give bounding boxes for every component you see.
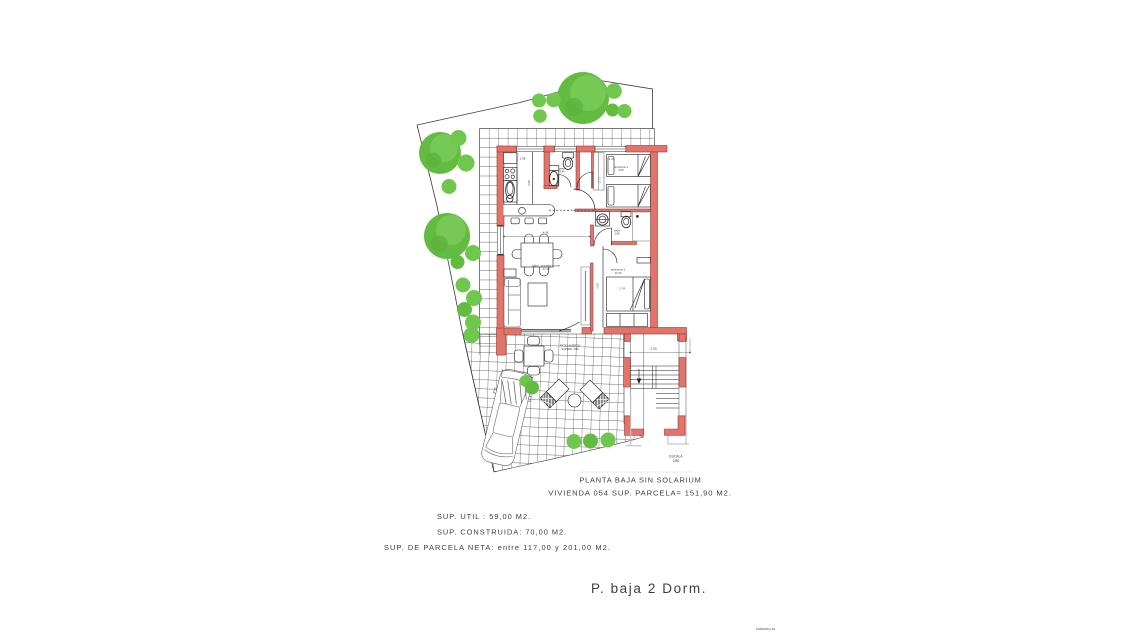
svg-text:27.10: 27.10 (543, 267, 550, 271)
svg-text:SUP. UTIL : 59,00 M2.: SUP. UTIL : 59,00 M2. (437, 512, 531, 521)
svg-text:1.88: 1.88 (520, 157, 526, 161)
svg-text:1.74: 1.74 (619, 287, 625, 291)
svg-text:2.20: 2.20 (650, 347, 656, 351)
svg-text:SUP. CONSTRUIDA: 70,00 M2.: SUP. CONSTRUIDA: 70,00 M2. (437, 527, 567, 536)
svg-text:SUPERF. 30M: SUPERF. 30M (561, 347, 579, 351)
svg-text:P. baja 2 Dorm.: P. baja 2 Dorm. (591, 581, 707, 596)
svg-text:FORMATO A3: FORMATO A3 (756, 627, 775, 631)
svg-text:VIVIENDA 054 SUP. PARCELA= 151: VIVIENDA 054 SUP. PARCELA= 151,90 M2. (548, 489, 732, 498)
svg-text:2.71: 2.71 (598, 177, 602, 183)
svg-text:3.90: 3.90 (596, 283, 600, 289)
svg-text:8.05: 8.05 (618, 168, 624, 172)
svg-text:10.30: 10.30 (615, 271, 622, 275)
svg-text:2.41: 2.41 (609, 157, 615, 161)
svg-text:PLANTA BAJA SIN SOLARIUM: PLANTA BAJA SIN SOLARIUM (579, 476, 701, 485)
svg-text:4.08: 4.08 (543, 231, 549, 235)
svg-text:SUP. DE PARCELA NETA: entre 11: SUP. DE PARCELA NETA: entre 117,00 y 201… (384, 543, 611, 552)
svg-text:4.45: 4.45 (559, 170, 565, 174)
svg-text:3.06: 3.06 (527, 180, 531, 186)
svg-text:1.85: 1.85 (614, 232, 620, 236)
svg-text:1/50: 1/50 (673, 459, 680, 463)
